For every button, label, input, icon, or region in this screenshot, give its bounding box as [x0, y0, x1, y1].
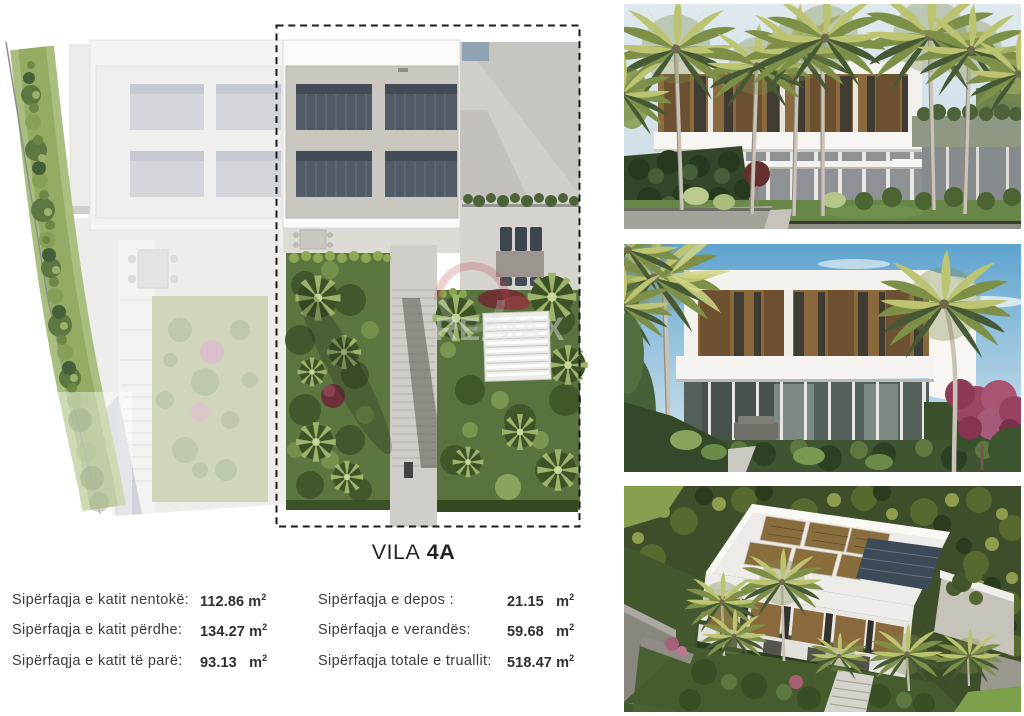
svg-text:RE/MAX: RE/MAX — [435, 311, 565, 347]
